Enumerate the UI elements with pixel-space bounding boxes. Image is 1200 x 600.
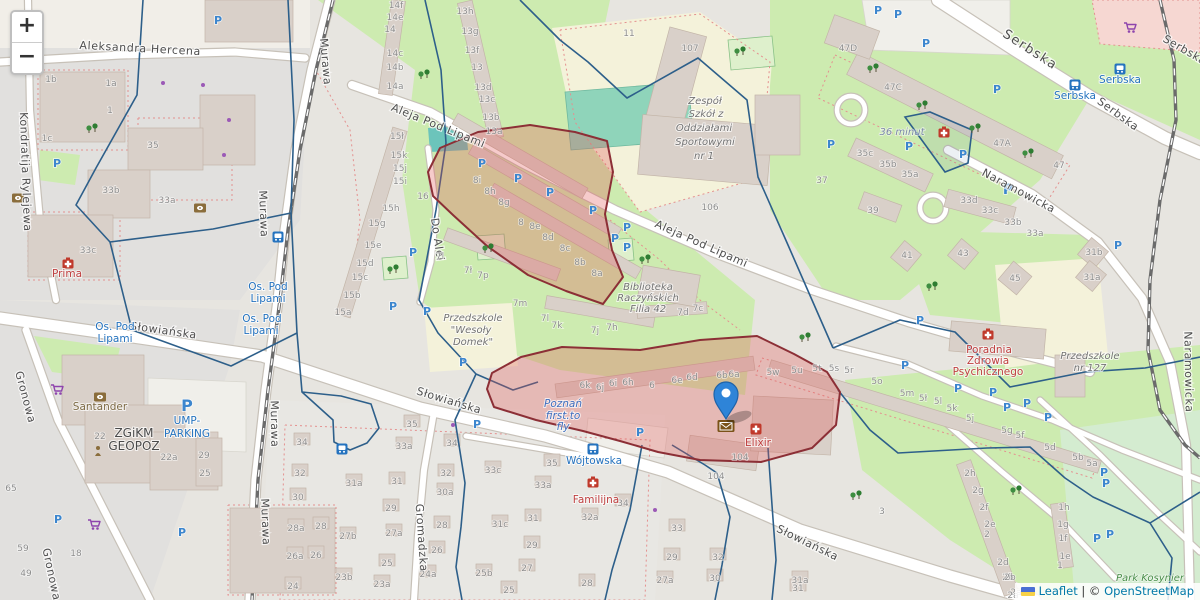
housenumber-label: 8c <box>560 244 571 254</box>
parking-icon: P <box>993 83 1001 96</box>
housenumber-label: 31 <box>391 477 402 487</box>
bank-icon <box>194 204 206 213</box>
housenumber-label: 5a <box>1086 459 1097 469</box>
housenumber-label: 33a <box>159 196 176 206</box>
poi-label: Przedszkole <box>443 313 502 324</box>
housenumber-label: 15e <box>365 241 382 251</box>
transit-stop-label: Lipami <box>250 293 285 305</box>
housenumber-label: 5m <box>900 389 915 399</box>
housenumber-label: 5s <box>829 364 840 374</box>
housenumber-label: 6a <box>728 370 739 380</box>
poi-label: fly <box>557 421 571 433</box>
housenumber-label: 15ł <box>390 132 404 142</box>
poi-label: Zespół <box>687 95 723 107</box>
housenumber-label: 47D <box>839 44 857 54</box>
poi-label: Prima <box>52 268 82 280</box>
landuse-playground-3 <box>728 36 775 70</box>
housenumber-label: 27a <box>657 576 674 586</box>
housenumber-label: 2d <box>997 558 1008 568</box>
copyright-symbol: © <box>1089 584 1101 598</box>
housenumber-label: 25 <box>381 559 392 569</box>
housenumber-label: 14e <box>387 13 404 23</box>
housenumber-label: 25 <box>503 586 514 596</box>
housenumber-label: 27b <box>339 532 356 542</box>
housenumber-label: 31a <box>1084 273 1101 283</box>
housenumber-label: 26a <box>287 552 304 562</box>
housenumber-label: 13f <box>465 46 480 56</box>
housenumber-label: 15k <box>391 151 408 161</box>
housenumber-label: 6k <box>580 381 592 391</box>
building <box>128 128 203 170</box>
parking-icon: P <box>954 382 962 395</box>
poi-label: Raczyńskich <box>617 292 679 304</box>
housenumber-label: 29 <box>198 451 210 461</box>
housenumber-label: 13a <box>486 127 503 137</box>
housenumber-label: 59 <box>17 544 29 554</box>
housenumber-label: 39 <box>867 206 879 216</box>
housenumber-label: 35 <box>546 459 557 469</box>
transit-stop-label: PARKING <box>164 428 210 440</box>
housenumber-label: 16 <box>417 192 429 202</box>
housenumber-label: 1a <box>105 79 116 89</box>
housenumber-label: 31 <box>527 514 538 524</box>
housenumber-label: 13b <box>482 113 499 123</box>
parking-icon: P <box>894 8 902 21</box>
housenumber-label: 47C <box>884 83 902 93</box>
parking-icon: P <box>636 426 644 439</box>
poi-label: Elixir <box>745 437 772 449</box>
housenumber-label: 6 <box>649 381 655 391</box>
tree-icon <box>799 332 810 342</box>
housenumber-label: 5f <box>1016 431 1026 441</box>
transit-stop-label: Os. Pod <box>248 281 287 293</box>
poi-label: Domek" <box>453 337 493 348</box>
parking-icon: P <box>54 513 62 526</box>
attribution-separator: | <box>1081 584 1085 598</box>
housenumber-label: 24a <box>420 570 437 580</box>
building <box>755 95 800 155</box>
transit-stop-label: Lipami <box>97 333 132 345</box>
housenumber-label: 27a <box>386 529 403 539</box>
parking-icon: P <box>178 526 186 539</box>
shop-dot-icon <box>201 83 205 87</box>
housenumber-label: 1 <box>107 106 113 116</box>
poi-label: Psychicznego <box>953 366 1024 378</box>
housenumber-label: 6i <box>609 379 617 389</box>
transit-stop-label: Os. Pod <box>242 313 281 325</box>
housenumber-label: 104 <box>731 453 748 463</box>
housenumber-label: 8i <box>473 176 481 186</box>
map-tiles: PPPPPPPPPPPPPPPPPPPPPPPPPPPPPPPPPPPPPPAl… <box>0 0 1200 600</box>
housenumber-label: 6e <box>671 376 683 386</box>
housenumber-label: 33a <box>535 481 552 491</box>
tree-icon <box>850 490 861 500</box>
housenumber-label: 35 <box>147 141 158 151</box>
transit-stop-label: Lipami <box>243 325 278 337</box>
transit-stop-label: UMP- <box>174 415 201 427</box>
housenumber-label: 32 <box>440 469 451 479</box>
housenumber-label: 34 <box>446 439 458 449</box>
housenumber-label: 6d <box>686 373 697 383</box>
housenumber-label: 15b <box>343 291 360 301</box>
map-canvas[interactable]: PPPPPPPPPPPPPPPPPPPPPPPPPPPPPPPPPPPPPPAl… <box>0 0 1200 600</box>
poi-label: Oddziałami <box>676 123 732 134</box>
housenumber-label: 7ł <box>464 266 473 276</box>
housenumber-label: 14c <box>387 49 403 59</box>
pharmacy-icon <box>751 424 762 435</box>
parking-icon: P <box>1003 401 1011 414</box>
housenumber-label: 2f <box>980 503 990 513</box>
housenumber-label: 33c <box>80 246 96 256</box>
transit-stop-label: Wójtowska <box>566 455 622 467</box>
poi-label: Filia 42 <box>630 304 666 315</box>
map-label: Murawa <box>268 400 282 447</box>
parking-icon: P <box>214 14 222 27</box>
parking-icon: P <box>1102 477 1110 490</box>
housenumber-label: 23b <box>335 573 352 583</box>
housenumber-label: 15d <box>356 259 373 269</box>
ukraine-flag-icon <box>1021 587 1035 596</box>
parking-icon: P <box>1023 397 1031 410</box>
housenumber-label: 35a <box>902 170 919 180</box>
housenumber-label: 13c <box>479 95 495 105</box>
parking-icon: P <box>922 37 930 50</box>
housenumber-label: 14 <box>384 25 396 35</box>
housenumber-label: 33c <box>982 206 998 216</box>
parking-icon: P <box>989 386 997 399</box>
housenumber-label: 7d <box>677 308 688 318</box>
poi-label: 36 minut <box>879 127 925 138</box>
housenumber-label: 33a <box>1027 229 1044 239</box>
housenumber-label: 32 <box>712 553 723 563</box>
housenumber-label: 107 <box>681 44 698 54</box>
housenumber-label: 13g <box>461 27 478 37</box>
parking-icon: P <box>1114 239 1122 252</box>
housenumber-label: 8d <box>542 233 553 243</box>
housenumber-label: 7m <box>513 299 528 309</box>
parking-icon: P <box>409 246 417 259</box>
poi-label: Biblioteka <box>623 282 673 293</box>
housenumber-label: 8h <box>484 187 495 197</box>
housenumber-label: 1f <box>1059 534 1069 544</box>
housenumber-label: 104 <box>707 472 724 482</box>
housenumber-label: 15j <box>393 164 407 174</box>
housenumber-label: 1c <box>42 134 53 144</box>
housenumber-label: 5t <box>812 364 822 374</box>
housenumber-label: 15i <box>393 177 407 187</box>
zoom-out-button[interactable]: − <box>12 42 42 73</box>
parking-icon: P <box>1093 532 1101 545</box>
housenumber-label: 35 <box>406 420 417 430</box>
housenumber-label: 2b <box>1004 573 1016 583</box>
housenumber-label: 5l <box>934 397 942 407</box>
housenumber-label: 29 <box>385 504 397 514</box>
zoom-in-button[interactable]: + <box>12 12 42 42</box>
housenumber-label: 28 <box>436 521 448 531</box>
housenumber-label: 37 <box>816 176 827 186</box>
poi-label: Santander <box>73 401 128 413</box>
bus-stop-icon <box>1115 64 1126 75</box>
housenumber-label: 49 <box>20 569 32 579</box>
housenumber-label: 28 <box>581 579 593 589</box>
housenumber-label: 27 <box>521 564 532 574</box>
housenumber-label: 7c <box>693 304 704 314</box>
housenumber-label: 7j <box>591 326 599 336</box>
housenumber-label: 28 <box>315 522 327 532</box>
housenumber-label: 31 <box>792 584 803 594</box>
housenumber-label: 18 <box>70 549 82 559</box>
shop-dot-icon <box>653 508 657 512</box>
parking-icon: P <box>473 418 481 431</box>
housenumber-label: 8e <box>529 222 541 232</box>
parking-icon: P <box>1044 411 1052 424</box>
poi-label: Poznań <box>544 398 582 410</box>
housenumber-label: 29 <box>526 541 538 551</box>
housenumber-label: 30 <box>292 493 304 503</box>
housenumber-label: 29 <box>666 553 678 563</box>
bus-stop-icon <box>588 444 599 455</box>
poi-label: Familijna <box>573 494 620 506</box>
parking-icon: P <box>546 186 554 199</box>
housenumber-label: 6h <box>622 378 633 388</box>
housenumber-label: 33b <box>1004 218 1021 228</box>
transit-stop-label: Os. Pod <box>95 321 134 333</box>
housenumber-label: 45 <box>1009 274 1020 284</box>
poi-label: GEOPOZ <box>108 439 159 453</box>
housenumber-label: 2g <box>972 486 983 496</box>
openstreetmap-link[interactable]: OpenStreetMap <box>1104 584 1194 598</box>
housenumber-label: 25 <box>199 469 210 479</box>
map-label: Murawa <box>317 38 334 86</box>
parking-icon: P <box>874 4 882 17</box>
bus-stop-icon <box>273 232 284 243</box>
housenumber-label: 5o <box>871 377 883 387</box>
housenumber-label: 15g <box>368 219 385 229</box>
shop-dot-icon <box>222 153 226 157</box>
housenumber-label: 7h <box>606 323 617 333</box>
housenumber-label: 5w <box>766 368 779 378</box>
map-label: Murawa <box>256 190 271 238</box>
bus-stop-icon <box>337 444 348 455</box>
housenumber-label: 31a <box>346 479 363 489</box>
housenumber-label: 1b <box>45 75 57 85</box>
map-label: Naramowicka <box>1181 331 1195 413</box>
parking-icon: P <box>589 204 597 217</box>
housenumber-label: 13d <box>474 83 491 93</box>
housenumber-label: 33b <box>102 186 119 196</box>
bus-stop-icon <box>1070 80 1081 91</box>
housenumber-label: 8b <box>574 258 586 268</box>
housenumber-label: 28a <box>288 524 305 534</box>
building <box>200 95 255 165</box>
parking-icon: P <box>53 157 61 170</box>
housenumber-label: 24 <box>287 582 299 592</box>
housenumber-label: 14b <box>386 63 403 73</box>
attribution-bar: Leaflet | © OpenStreetMap <box>1015 583 1200 600</box>
housenumber-label: 35c <box>857 149 873 159</box>
housenumber-label: 22a <box>161 453 178 463</box>
parking-icon: P <box>623 221 631 234</box>
housenumber-label: 14f <box>389 1 404 11</box>
housenumber-label: 5b <box>1072 453 1084 463</box>
poi-label: Sportowymi <box>675 137 735 148</box>
housenumber-label: 15a <box>335 308 352 318</box>
transit-stop-label: Serbska <box>1054 90 1096 102</box>
housenumber-label: 5g <box>1001 426 1012 436</box>
housenumber-label: 33a <box>396 442 413 452</box>
housenumber-label: 22 <box>94 432 105 442</box>
housenumber-label: 13 <box>471 63 482 73</box>
transit-stop-label: Serbska <box>1099 74 1141 86</box>
housenumber-label: 26 <box>431 546 443 556</box>
leaflet-link[interactable]: Leaflet <box>1039 584 1078 598</box>
parking-icon: P <box>959 148 967 161</box>
housenumber-label: 23a <box>374 580 391 590</box>
parking-icon: P <box>459 356 467 369</box>
housenumber-label: 15c <box>352 273 368 283</box>
housenumber-label: 5d <box>1044 443 1055 453</box>
housenumber-label: 5ł <box>919 394 928 404</box>
housenumber-label: 25b <box>475 569 492 579</box>
housenumber-label: 33d <box>960 196 977 206</box>
housenumber-label: 47A <box>993 139 1011 149</box>
housenumber-label: 2h <box>964 469 975 479</box>
housenumber-label: 1h <box>1058 503 1069 513</box>
housenumber-label: 30 <box>709 574 721 584</box>
parking-icon: P <box>827 138 835 151</box>
housenumber-label: 8a <box>591 269 602 279</box>
housenumber-label: 7k <box>552 321 564 331</box>
housenumber-label: 14a <box>387 82 404 92</box>
housenumber-label: 6b <box>716 371 728 381</box>
housenumber-label: 8g <box>498 198 509 208</box>
parking-icon: P <box>423 305 431 318</box>
poi-label: Szkół z <box>689 108 725 120</box>
housenumber-label: 7l <box>436 252 444 262</box>
parking-icon: P <box>623 241 631 254</box>
parking-icon: P <box>1106 528 1114 541</box>
poi-label: "Wesoły <box>451 325 493 336</box>
poi-label: ZGiKM <box>114 426 153 440</box>
housenumber-label: 43 <box>957 249 968 259</box>
housenumber-label: 65 <box>5 484 16 494</box>
map-label: Murawa <box>258 498 273 546</box>
housenumber-label: 8 <box>518 218 524 228</box>
housenumber-label: 30a <box>437 488 454 498</box>
parking-icon: P <box>905 140 913 153</box>
poi-label: nr 127 <box>1074 363 1107 374</box>
parking-icon: P <box>916 314 924 327</box>
shop-dot-icon <box>161 81 165 85</box>
housenumber-label: 7p <box>477 271 489 281</box>
housenumber-label: 32a <box>582 513 599 523</box>
parking-icon: P <box>181 396 193 415</box>
housenumber-label: 7l <box>541 314 549 324</box>
housenumber-label: 1g <box>1057 520 1068 530</box>
housenumber-label: 34 <box>296 438 308 448</box>
housenumber-label: 11 <box>623 29 634 39</box>
housenumber-label: 15h <box>382 204 399 214</box>
housenumber-label: 5r <box>844 366 854 376</box>
housenumber-label: 35b <box>879 160 896 170</box>
housenumber-label: 106 <box>701 203 718 213</box>
housenumber-label: 26 <box>310 551 322 561</box>
housenumber-label: 33c <box>485 466 501 476</box>
poi-label: nr 1 <box>694 151 714 162</box>
housenumber-label: 33 <box>671 524 682 534</box>
parking-icon: P <box>514 172 522 185</box>
parking-icon: P <box>611 232 619 245</box>
housenumber-label: 6j <box>596 383 604 393</box>
shop-dot-icon <box>227 118 231 122</box>
housenumber-label: 5u <box>791 366 802 376</box>
parking-icon: P <box>901 359 909 372</box>
parking-icon: P <box>389 300 397 313</box>
housenumber-label: 13h <box>456 7 473 17</box>
housenumber-label: 2e <box>984 520 996 530</box>
housenumber-label: 5k <box>947 404 959 414</box>
housenumber-label: 2 <box>984 530 990 540</box>
housenumber-label: 31c <box>492 520 508 530</box>
poi-label: Przedszkole <box>1060 351 1119 362</box>
housenumber-label: 41 <box>901 251 912 261</box>
housenumber-label: 47 <box>1053 161 1064 171</box>
housenumber-label: 32 <box>294 469 305 479</box>
housenumber-label: 5j <box>966 414 974 424</box>
housenumber-label: 31b <box>1085 248 1102 258</box>
parking-icon: P <box>478 157 486 170</box>
zoom-control: + − <box>10 10 44 75</box>
shop-dot-icon <box>451 423 455 427</box>
housenumber-label: 3 <box>879 507 885 517</box>
housenumber-label: 1 <box>1057 561 1063 571</box>
